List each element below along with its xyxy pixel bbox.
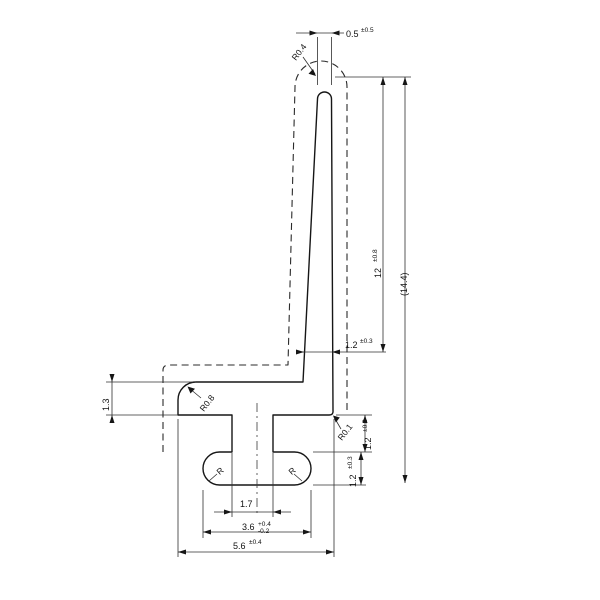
dim-bulb-width-tol-plus: +0.4 bbox=[258, 521, 271, 528]
technical-drawing-page: 0.5 ±0.5 R0.4 12 ±0.8 (14.4) 1.2 ±0.3 R0… bbox=[0, 0, 600, 600]
dimension-arrows bbox=[110, 31, 408, 555]
leader-lines bbox=[189, 57, 341, 481]
dim-overall-width-tolerance: ±0.4 bbox=[249, 539, 262, 546]
dim-bulb-thickness-value: 1.2 bbox=[348, 474, 358, 487]
radius-label-bulb-right: R bbox=[286, 465, 297, 477]
dim-overall-height-ref: (14.4) bbox=[399, 272, 409, 296]
dim-bulb-width-value: 3.6 bbox=[242, 522, 255, 532]
dim-blade-height-tolerance: ±0.8 bbox=[372, 249, 379, 262]
dim-blade-thickness-tolerance: ±0.3 bbox=[360, 338, 373, 345]
radius-label-lip: R0.8 bbox=[198, 393, 217, 414]
dim-lip-thickness-value: 1.3 bbox=[101, 398, 111, 411]
dimension-labels: 0.5 ±0.5 R0.4 12 ±0.8 (14.4) 1.2 ±0.3 R0… bbox=[101, 27, 409, 551]
radius-label-tip: R0.4 bbox=[290, 42, 309, 63]
seal-profile-drawing: 0.5 ±0.5 R0.4 12 ±0.8 (14.4) 1.2 ±0.3 R0… bbox=[0, 0, 600, 600]
dim-slot-width-value: 1.7 bbox=[240, 499, 253, 509]
dim-blade-thickness-value: 1.2 bbox=[345, 340, 358, 350]
dim-blade-height-value: 12 bbox=[373, 268, 383, 278]
profile-outline bbox=[178, 92, 333, 485]
dim-bulb-width-tol-minus: -0.2 bbox=[258, 528, 270, 535]
dim-tip-width-value: 0.5 bbox=[346, 29, 359, 39]
dim-stem-height-value: 1.2 bbox=[363, 437, 373, 450]
dim-stem-height-tolerance: ±0.3 bbox=[362, 419, 369, 432]
dim-overall-width-value: 5.6 bbox=[233, 541, 246, 551]
extension-lines bbox=[106, 33, 411, 557]
dim-bulb-thickness-tolerance: ±0.3 bbox=[347, 456, 354, 469]
dim-tip-width-tolerance: ±0.5 bbox=[361, 27, 374, 34]
